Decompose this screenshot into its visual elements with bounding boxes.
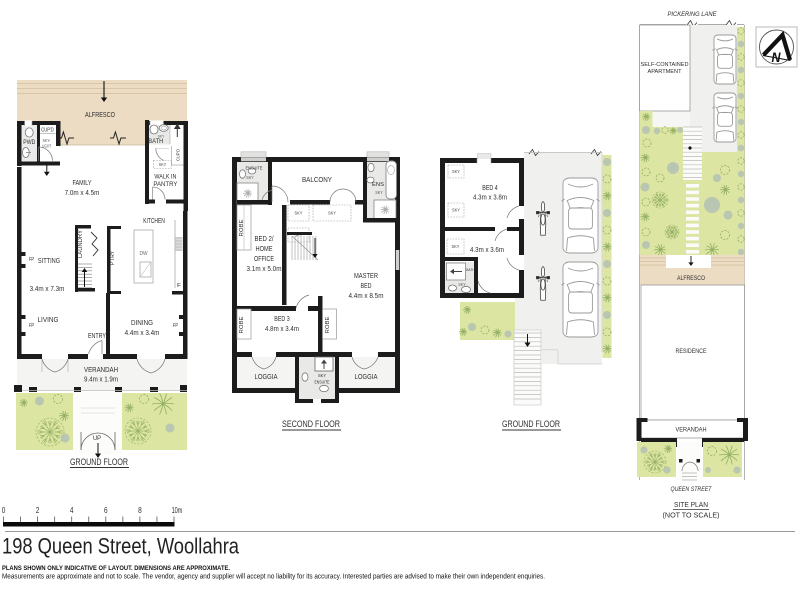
svg-text:ALFRESCO: ALFRESCO: [677, 275, 705, 282]
svg-text:BED 3: BED 3: [274, 316, 289, 323]
svg-text:4.4m x 8.5m: 4.4m x 8.5m: [349, 293, 384, 300]
svg-text:BATH: BATH: [148, 138, 163, 145]
svg-text:LAUNDRY: LAUNDRY: [78, 230, 84, 258]
svg-text:GROUND FLOOR: GROUND FLOOR: [70, 456, 128, 467]
svg-text:LOGGIA: LOGGIA: [255, 374, 278, 381]
svg-text:ROBE: ROBE: [239, 316, 245, 334]
svg-text:3.1m x 5.0m: 3.1m x 5.0m: [247, 266, 282, 273]
svg-text:4.4m x 3.4m: 4.4m x 3.4m: [125, 328, 160, 337]
svg-text:P'TRY: P'TRY: [110, 250, 116, 265]
svg-text:SKY: SKY: [452, 208, 460, 213]
svg-text:Measurements are approximate a: Measurements are approximate and not to …: [2, 574, 545, 581]
svg-text:4: 4: [70, 506, 74, 515]
svg-text:4.3m x 3.6m: 4.3m x 3.6m: [470, 247, 504, 254]
svg-text:8: 8: [138, 506, 142, 515]
svg-text:SKY: SKY: [159, 162, 167, 167]
svg-text:SECOND FLOOR: SECOND FLOOR: [282, 418, 340, 429]
svg-text:9.4m x 1.9m: 9.4m x 1.9m: [84, 375, 118, 384]
svg-text:SKY: SKY: [452, 244, 460, 249]
svg-text:SKY-: SKY-: [43, 138, 51, 143]
svg-text:4.3m x 3.8m: 4.3m x 3.8m: [473, 195, 507, 202]
svg-text:ROBE: ROBE: [239, 219, 245, 237]
svg-text:PICKERING LANE: PICKERING LANE: [668, 11, 717, 18]
svg-text:VERANDAH: VERANDAH: [84, 365, 118, 374]
svg-text:PWD: PWD: [23, 140, 36, 146]
svg-text:ENSUITE: ENSUITE: [246, 166, 263, 172]
svg-text:BED 2/: BED 2/: [255, 236, 274, 243]
svg-text:6: 6: [104, 506, 108, 515]
svg-text:198 Queen Street, Woollahra: 198 Queen Street, Woollahra: [2, 534, 239, 559]
svg-text:OFFICE: OFFICE: [254, 256, 274, 263]
svg-text:SITTING: SITTING: [38, 256, 61, 265]
svg-text:7.0m x 4.5m: 7.0m x 4.5m: [65, 188, 100, 197]
svg-text:3.4m x 7.3m: 3.4m x 7.3m: [30, 284, 65, 293]
svg-text:ALFRESCO: ALFRESCO: [85, 110, 115, 119]
svg-text:BED: BED: [361, 283, 372, 290]
svg-text:N: N: [772, 50, 781, 65]
svg-text:ENS: ENS: [372, 182, 385, 188]
svg-text:GROUND FLOOR: GROUND FLOOR: [502, 418, 560, 429]
svg-text:WALK IN: WALK IN: [154, 174, 176, 181]
svg-text:MASTER: MASTER: [354, 273, 378, 280]
svg-text:HOME: HOME: [256, 246, 273, 253]
svg-text:ENTRY: ENTRY: [88, 331, 106, 340]
svg-text:0: 0: [2, 506, 6, 515]
svg-text:PLANS SHOWN ONLY INDICATIVE OF: PLANS SHOWN ONLY INDICATIVE OF LAYOUT. D…: [2, 565, 230, 572]
svg-text:CUP'D: CUP'D: [41, 127, 54, 133]
svg-text:APARTMENT: APARTMENT: [648, 69, 683, 75]
svg-text:SKY: SKY: [158, 135, 165, 139]
svg-text:ROBE: ROBE: [325, 316, 331, 334]
svg-text:VERANDAH: VERANDAH: [676, 427, 707, 434]
svg-text:SKY: SKY: [246, 175, 254, 180]
svg-text:QUEEN STREET: QUEEN STREET: [671, 487, 713, 493]
svg-text:UP: UP: [93, 436, 101, 442]
svg-text:FP: FP: [173, 323, 178, 329]
svg-text:LIVING: LIVING: [38, 315, 59, 324]
svg-text:(NOT TO SCALE): (NOT TO SCALE): [663, 511, 720, 520]
svg-text:KITCHEN: KITCHEN: [143, 218, 165, 225]
svg-text:SKY: SKY: [318, 373, 326, 378]
svg-text:SKY: SKY: [375, 190, 383, 195]
svg-text:PANTRY: PANTRY: [153, 181, 177, 188]
svg-text:DW: DW: [140, 251, 148, 257]
svg-text:SITE PLAN: SITE PLAN: [674, 500, 708, 509]
svg-text:4.8m x 3.4m: 4.8m x 3.4m: [265, 326, 299, 333]
svg-text:SKY: SKY: [452, 169, 460, 174]
svg-text:BED 4: BED 4: [482, 185, 497, 192]
svg-text:BATH: BATH: [466, 267, 475, 272]
svg-text:SKY: SKY: [295, 211, 303, 216]
svg-text:FAMILY: FAMILY: [73, 178, 92, 187]
svg-text:BALCONY: BALCONY: [302, 175, 332, 184]
svg-text:DINING: DINING: [131, 318, 153, 327]
svg-text:F: F: [177, 283, 182, 289]
svg-text:FP: FP: [29, 257, 34, 263]
svg-text:10m: 10m: [172, 506, 183, 515]
svg-text:SELF-CONTAINED: SELF-CONTAINED: [641, 62, 689, 68]
svg-text:2: 2: [36, 506, 40, 515]
svg-text:FP: FP: [29, 323, 34, 329]
svg-text:ENSUITE: ENSUITE: [315, 380, 330, 385]
svg-text:LOGGIA: LOGGIA: [355, 374, 378, 381]
svg-text:RESIDENCE: RESIDENCE: [676, 348, 707, 355]
svg-text:CUP'D: CUP'D: [176, 149, 181, 161]
svg-text:SKY: SKY: [328, 211, 336, 216]
